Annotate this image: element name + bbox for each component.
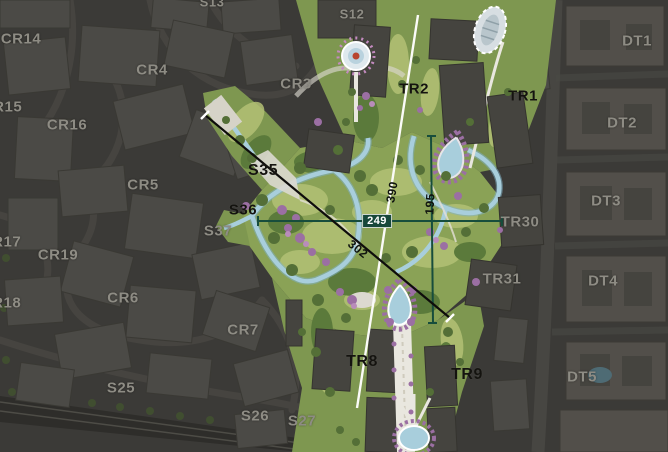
zone-label-s13: S13 [200, 0, 225, 10]
measurement-249-box: 249 [362, 214, 392, 228]
zone-label-tr30: TR30 [501, 214, 540, 231]
zone-label-s36: S36 [229, 202, 257, 219]
zone-label-dt3: DT3 [591, 193, 621, 210]
zone-label-s25: S25 [107, 380, 135, 397]
zone-label-cr15: CR15 [0, 99, 22, 116]
zone-label-s35: S35 [248, 162, 278, 180]
zone-label-tr9: TR9 [451, 366, 483, 384]
zone-label-s37: S37 [204, 223, 232, 240]
zone-label-tr1: TR1 [508, 88, 538, 105]
zone-label-s27: S27 [288, 413, 316, 430]
zone-label-cr17: CR17 [0, 234, 21, 251]
zone-label-cr5: CR5 [127, 177, 159, 194]
zone-label-cr7: CR7 [227, 322, 259, 339]
zone-label-cr6: CR6 [107, 290, 139, 307]
zone-label-cr3: CR3 [280, 76, 312, 93]
zone-label-cr19: CR19 [38, 247, 78, 264]
zone-label-cr18: CR18 [0, 295, 21, 312]
zone-label-dt1: DT1 [622, 33, 652, 50]
zone-label-cr16: CR16 [47, 117, 87, 134]
zone-label-cr14: CR14 [1, 31, 41, 48]
zone-label-tr2: TR2 [399, 81, 429, 98]
measurement-195: 195 [422, 193, 437, 215]
zone-label-tr8: TR8 [346, 353, 378, 371]
zone-label-cr4: CR4 [136, 62, 168, 79]
zone-label-tr31: TR31 [483, 271, 522, 288]
zone-label-dt2: DT2 [607, 115, 637, 132]
zone-label-s26: S26 [241, 408, 269, 425]
zone-label-dt5: DT5 [567, 369, 597, 386]
masterplan-map: S13 S12 CR14 DT1 CR4 CR3 TR2 TR1 CR15 CR… [0, 0, 668, 452]
zone-label-s12: S12 [340, 7, 365, 22]
zone-label-dt4: DT4 [588, 273, 618, 290]
